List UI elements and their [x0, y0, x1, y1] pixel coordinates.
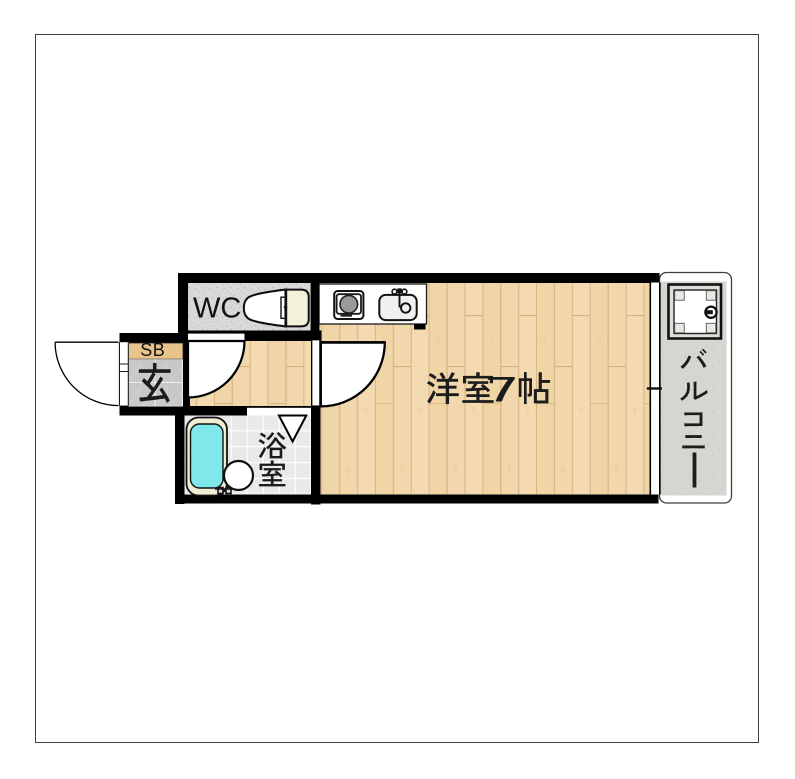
svg-text:SB: SB [140, 340, 165, 360]
svg-text:WC: WC [193, 293, 241, 325]
